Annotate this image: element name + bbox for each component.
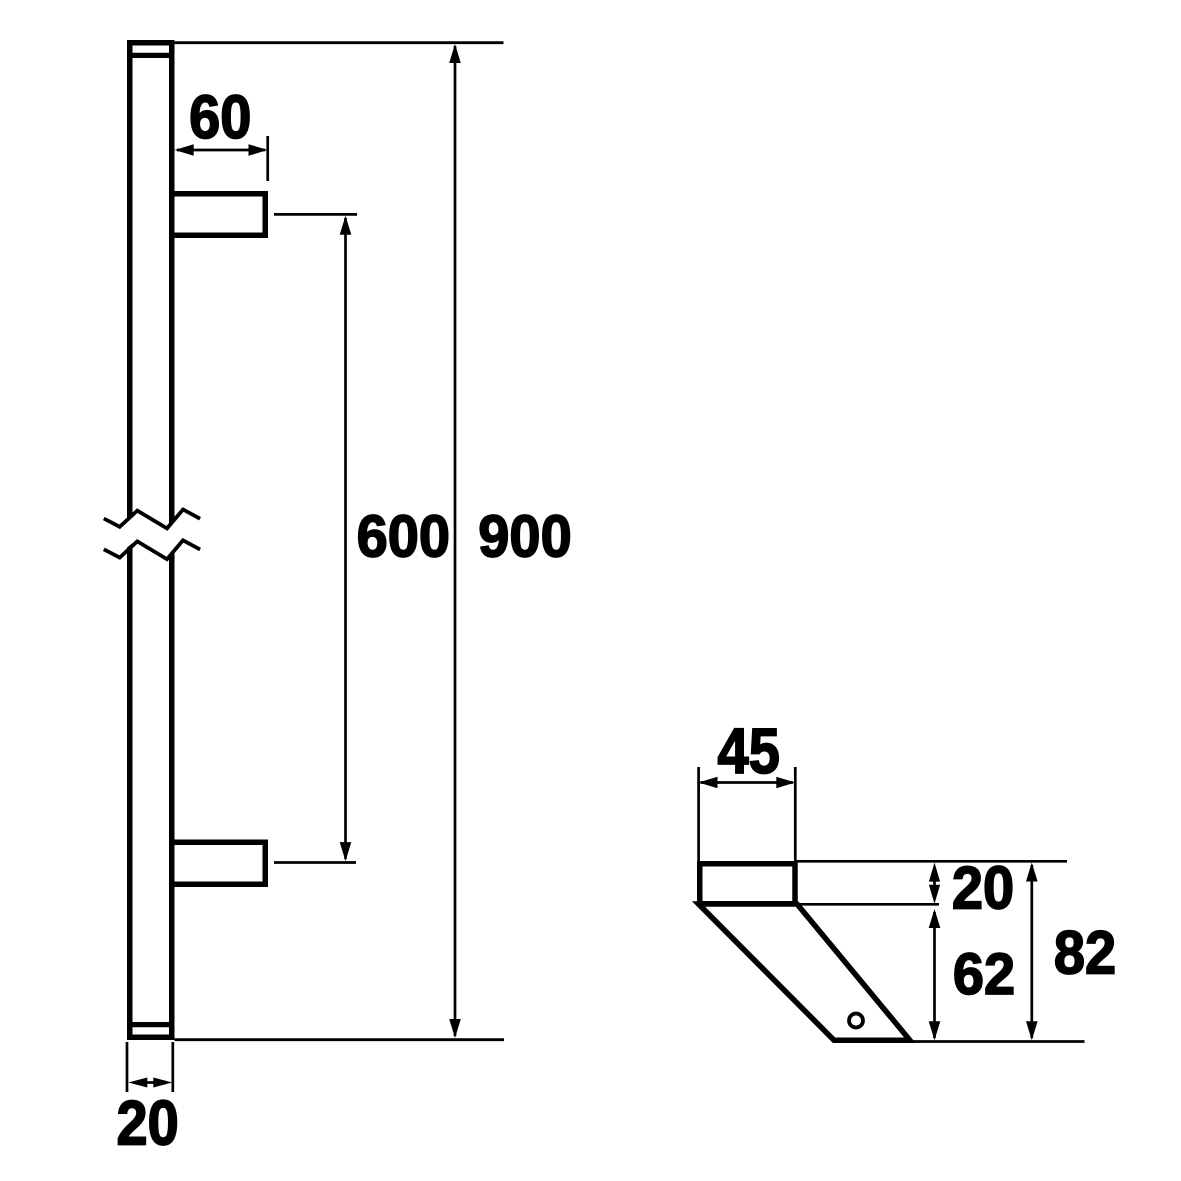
svg-text:60: 60 [189,84,251,152]
svg-text:20: 20 [116,1088,178,1159]
svg-text:20: 20 [952,854,1014,921]
svg-text:900: 900 [478,504,571,570]
svg-text:62: 62 [953,942,1015,1007]
svg-text:82: 82 [1054,919,1116,987]
svg-text:45: 45 [718,716,780,787]
svg-text:600: 600 [357,504,450,570]
